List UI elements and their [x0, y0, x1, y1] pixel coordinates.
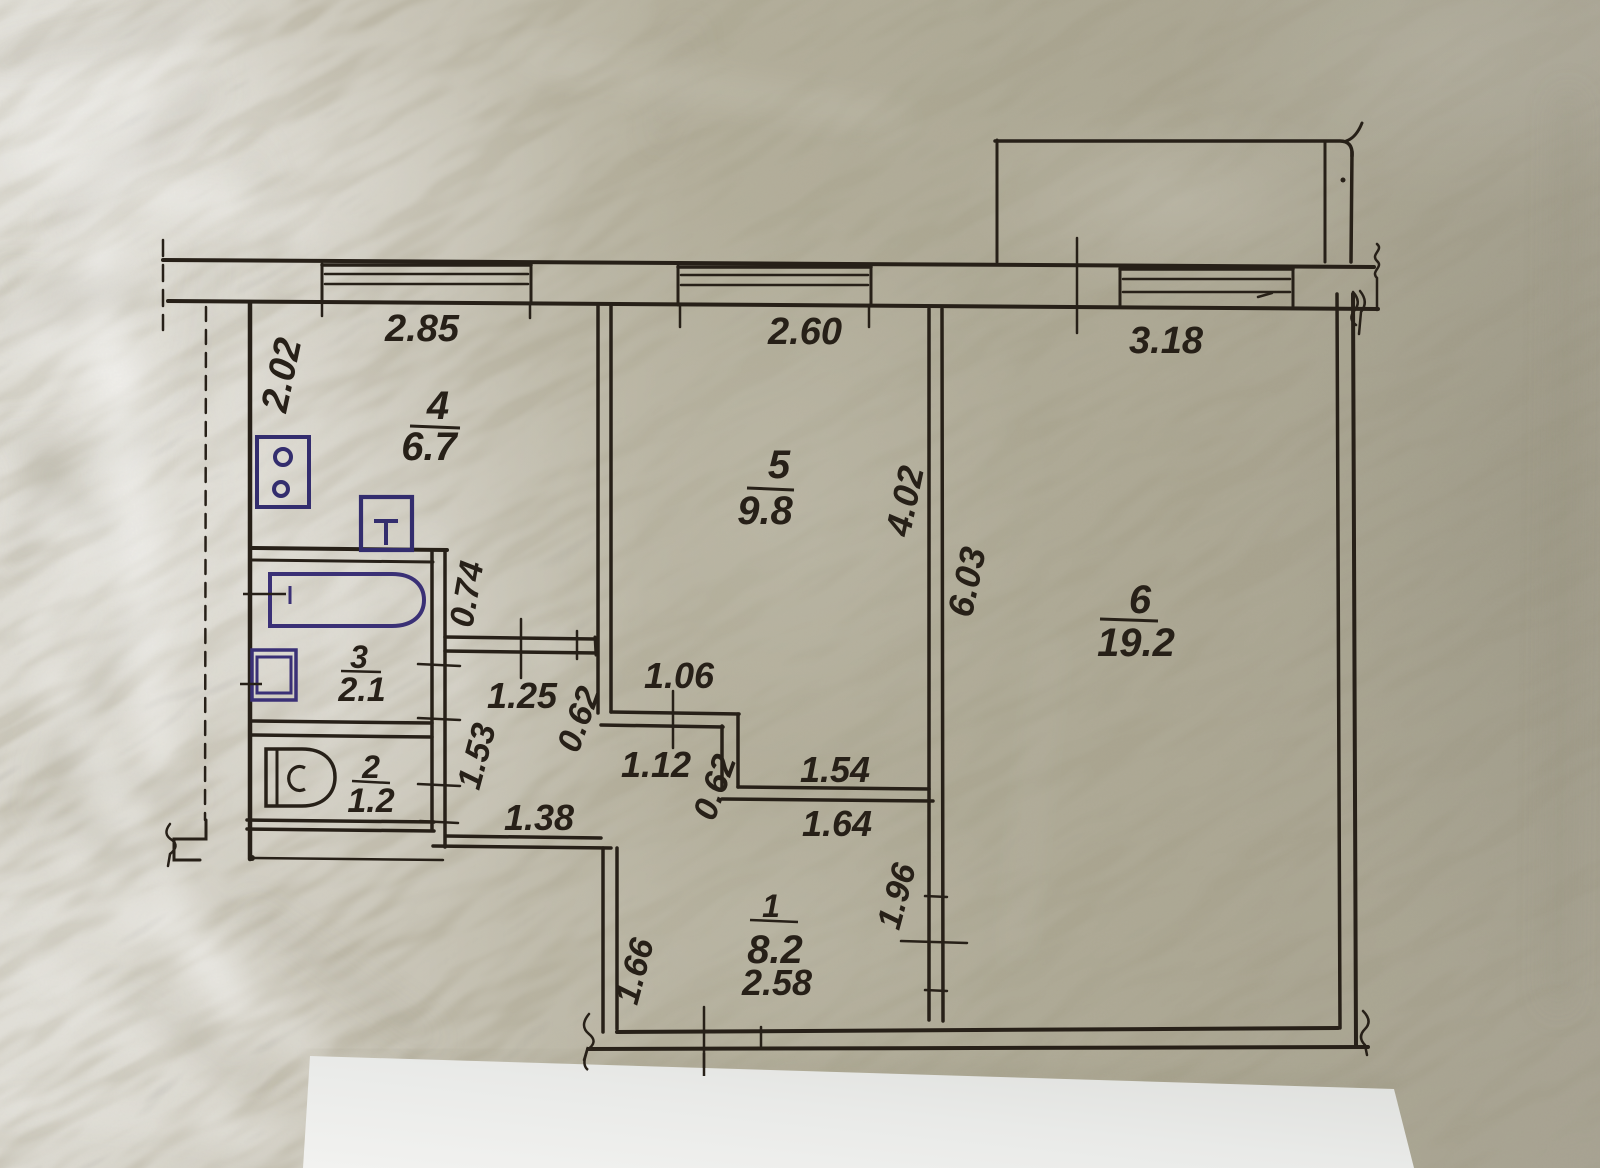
svg-text:1.54: 1.54 [800, 749, 870, 790]
svg-text:19.2: 19.2 [1097, 621, 1175, 665]
svg-text:1.12: 1.12 [621, 744, 691, 785]
svg-text:1.25: 1.25 [487, 675, 558, 716]
svg-text:1.06: 1.06 [644, 655, 715, 696]
svg-text:6: 6 [1129, 578, 1152, 622]
svg-text:2.85: 2.85 [384, 308, 460, 350]
svg-text:1.2: 1.2 [347, 782, 394, 820]
svg-text:1.64: 1.64 [802, 803, 872, 844]
svg-text:2.60: 2.60 [767, 311, 842, 353]
svg-text:4: 4 [426, 384, 449, 428]
svg-text:9.8: 9.8 [737, 489, 793, 533]
svg-text:3: 3 [350, 639, 368, 675]
svg-text:2.1: 2.1 [337, 671, 385, 709]
svg-text:2: 2 [361, 749, 380, 785]
svg-text:3.18: 3.18 [1129, 320, 1204, 362]
svg-text:6.7: 6.7 [401, 425, 458, 469]
svg-text:2.58: 2.58 [741, 962, 812, 1003]
svg-text:1: 1 [762, 888, 780, 924]
svg-text:5: 5 [768, 443, 791, 487]
svg-text:1.38: 1.38 [504, 797, 574, 838]
